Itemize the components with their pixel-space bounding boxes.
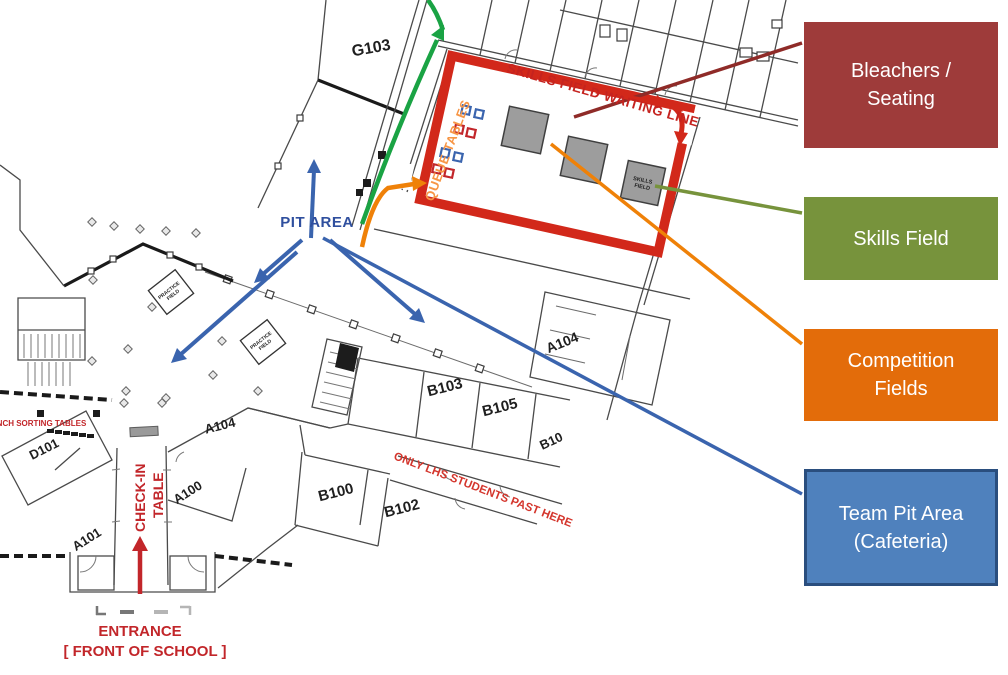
practice-field-box-2: PRACTICE FIELD	[240, 320, 285, 365]
column-markers	[88, 218, 262, 407]
entrance-sublabel: [ FRONT OF SCHOOL ]	[63, 643, 226, 660]
legend-label-bleachers-seating: Bleachers / Seating	[828, 57, 974, 113]
entrance-door-symbols	[96, 606, 190, 615]
legend-item-skills-field: Skills Field	[804, 197, 998, 280]
check-in-red-arrow	[132, 536, 148, 594]
room-label-a104-south: A104	[203, 414, 238, 436]
connector-skills-field-line	[655, 186, 802, 213]
legend-item-competition-fields: Competition Fields	[804, 329, 998, 421]
room-label-b102: B102	[382, 496, 421, 521]
skills-field-square: SKILLS FIELD	[620, 160, 665, 205]
room-label-b10: B10	[537, 429, 565, 453]
only-lhs-students-label: ONLY LHS STUDENTS PAST HERE	[392, 451, 574, 530]
legend-item-team-pit-area: Team Pit Area (Cafeteria)	[804, 469, 998, 586]
room-label-b100: B100	[316, 480, 355, 505]
check-in-table-marker	[130, 426, 158, 436]
room-label-b105: B105	[480, 395, 519, 420]
legend-label-competition-fields: Competition Fields	[828, 347, 974, 403]
pit-area-label: PIT AREA	[280, 214, 353, 231]
queue-entry-orange-arrow	[362, 176, 427, 247]
room-label-g103: G103	[350, 37, 392, 61]
legend-label-skills-field: Skills Field	[853, 225, 949, 253]
check-in-table-label-line2: TABLE	[150, 472, 166, 518]
entrance-label: ENTRANCE	[98, 623, 181, 640]
room-label-a104-center: A104	[544, 329, 581, 356]
legend-label-team-pit-area: Team Pit Area (Cafeteria)	[831, 500, 971, 556]
event-floor-plan: PRACTICE FIELD PRACTICE FIELD SKILLS FIE…	[0, 0, 1008, 675]
legend-item-bleachers-seating: Bleachers / Seating	[804, 22, 998, 148]
lunch-sorting-tables-label: LUNCH SORTING TABLES	[0, 419, 87, 428]
competition-field-square-1	[501, 106, 548, 153]
room-label-a100: A100	[170, 478, 204, 507]
competition-field-square-2	[560, 136, 607, 183]
check-in-table-label-line1: CHECK-IN	[132, 464, 148, 532]
room-label-b103: B103	[425, 375, 464, 400]
room-label-a101: A101	[69, 525, 103, 554]
